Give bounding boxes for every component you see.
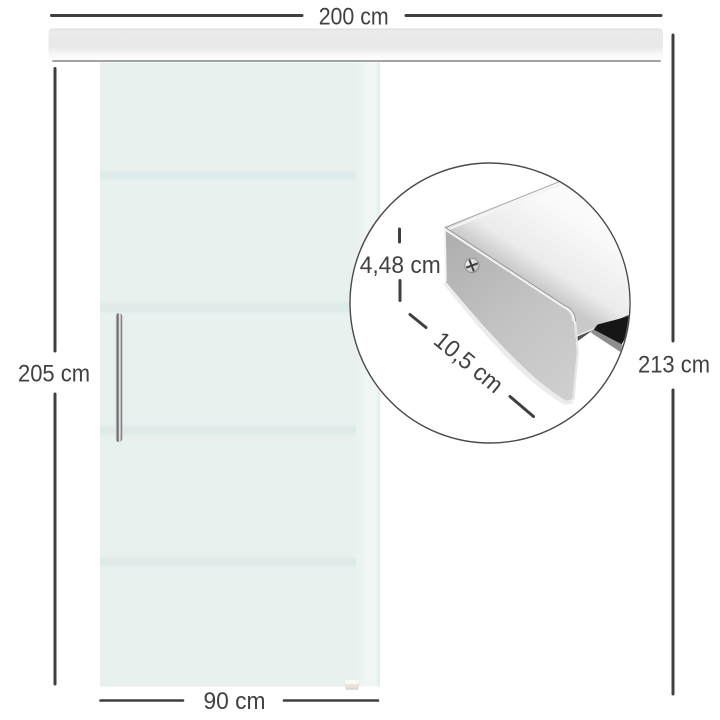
svg-text:200 cm: 200 cm (319, 4, 389, 31)
svg-text:4,48 cm: 4,48 cm (360, 252, 441, 279)
svg-text:213 cm: 213 cm (638, 352, 710, 379)
svg-text:90 cm: 90 cm (204, 688, 266, 715)
svg-text:205 cm: 205 cm (18, 361, 90, 388)
